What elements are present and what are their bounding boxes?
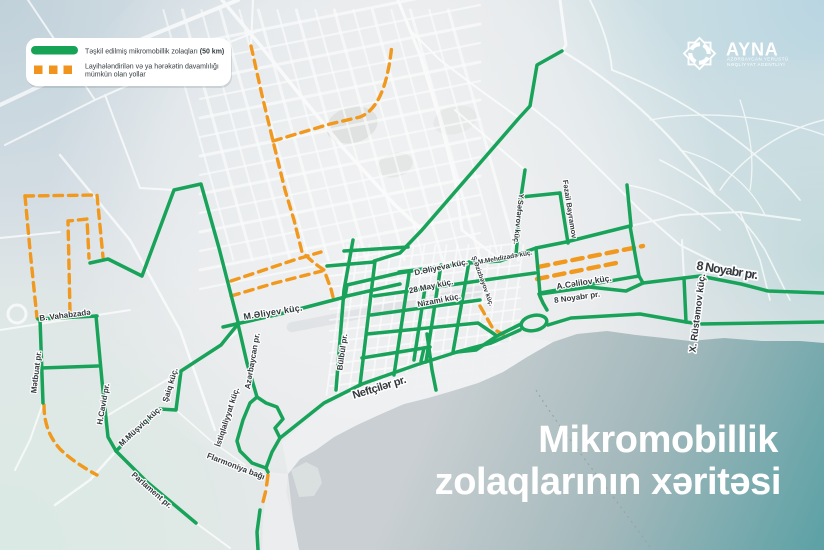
svg-text:zolaqlarının xəritəsi: zolaqlarının xəritəsi [435, 461, 781, 503]
svg-text:mümkün olan yollar: mümkün olan yollar [85, 72, 146, 79]
svg-text:Mikromobillik: Mikromobillik [538, 419, 779, 461]
svg-text:Təşkil edilmiş mikromobillik z: Təşkil edilmiş mikromobillik zolaqları (… [85, 49, 224, 56]
svg-text:NƏQLİYYAT AGENTLİYİ: NƏQLİYYAT AGENTLİYİ [727, 61, 785, 67]
svg-text:AZƏRBAYCAN YERÜSTÜ: AZƏRBAYCAN YERÜSTÜ [727, 56, 789, 62]
svg-text:Layihələndirilən və ya hərəkət: Layihələndirilən və ya hərəkətin davamlı… [85, 64, 219, 71]
